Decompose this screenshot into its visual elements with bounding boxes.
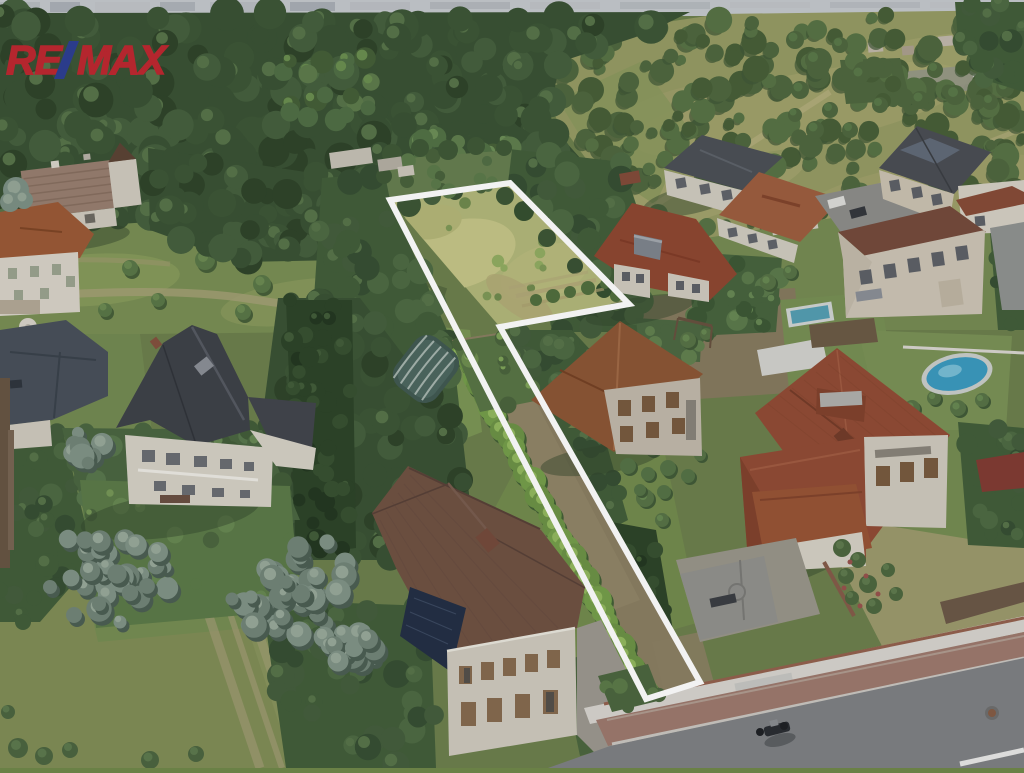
svg-text:MAX: MAX	[77, 37, 169, 83]
svg-text:RE: RE	[6, 37, 64, 83]
